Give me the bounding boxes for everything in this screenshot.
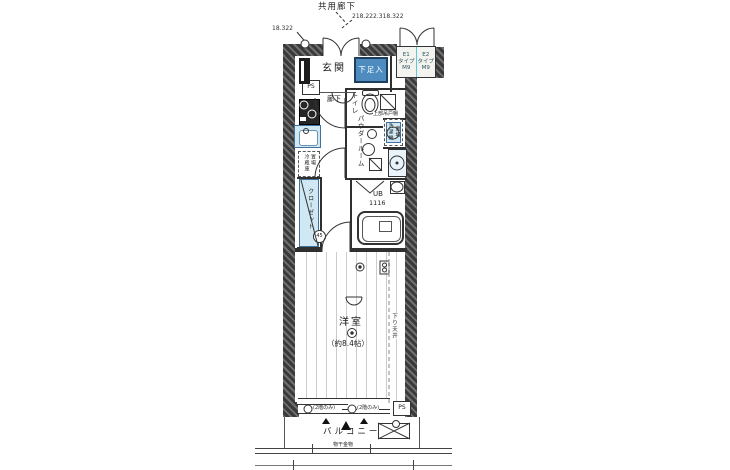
vent-symbol-dot-2 (383, 268, 387, 272)
left-dim-label: 18.322 (272, 26, 293, 33)
stove-burner-2 (308, 110, 316, 118)
lowered-ceiling-label: 下り天井 (391, 313, 397, 339)
washer-drum (387, 127, 399, 139)
hallway-label: 廊下 (327, 96, 341, 104)
corridor-leader-line (336, 12, 346, 23)
window-mark-left (304, 405, 312, 413)
plan-linework (0, 0, 730, 470)
floorplan-canvas: 下足入 E1 タイプ M9 E2 タイプ M9 PS 冷蔵庫 置場 クローゼット (0, 0, 730, 470)
toilet-label: トイレ (350, 92, 357, 115)
neighbor-door-swing (400, 28, 434, 46)
balcony-label: バルコニー (323, 428, 380, 437)
closet-diagonal (301, 180, 318, 246)
unit-bath-size-label: 1116 (369, 200, 386, 207)
window-mark-right (348, 405, 356, 413)
window-note-right: (2階のみ) (357, 406, 379, 412)
bath-sink-bowl (391, 182, 403, 192)
western-room-label: 洋室 (339, 317, 363, 328)
unit-bath-label: UB (373, 191, 383, 199)
western-room-area-label: （約8.4帖） (327, 340, 369, 348)
upper-cabinet-label: 上部吊戸棚 (373, 112, 398, 118)
stove-grill (300, 117, 306, 121)
vanity-faucet (396, 162, 398, 164)
window-note-left: (2階のみ) (313, 406, 335, 412)
vent-symbol-dot-1 (383, 263, 387, 267)
powder-room-label: パウダールーム (356, 115, 363, 168)
unit-numbers-label: 218.222.318.322 (352, 14, 404, 21)
ceiling-light-symbol (346, 297, 362, 305)
toilet-counter-diagonal (380, 94, 396, 110)
wall-mark-right (362, 40, 370, 48)
kitchen-faucet (304, 129, 309, 134)
hatch-mark (393, 421, 400, 428)
toilet-bowl-inner (365, 99, 375, 112)
entrance-label: 玄関 (322, 63, 346, 74)
unit-numbers-leader-line (342, 20, 352, 28)
wall-mark-left (301, 40, 309, 48)
detector-symbol-dot (359, 266, 361, 268)
entrance-door-swing (323, 38, 359, 56)
laundry-pole-triangle-right (360, 418, 368, 424)
room-door-swing (322, 222, 350, 252)
room-note-symbol-dot (351, 332, 353, 334)
laundry-fitting-label: 物干金物 (333, 443, 353, 449)
laundry-pole-triangle-left (322, 418, 330, 424)
powder-square-diagonal (369, 158, 382, 171)
stove-burner-1 (300, 101, 308, 109)
common-corridor-label: 共用廊下 (318, 3, 356, 12)
powder-door-swing (315, 148, 345, 178)
